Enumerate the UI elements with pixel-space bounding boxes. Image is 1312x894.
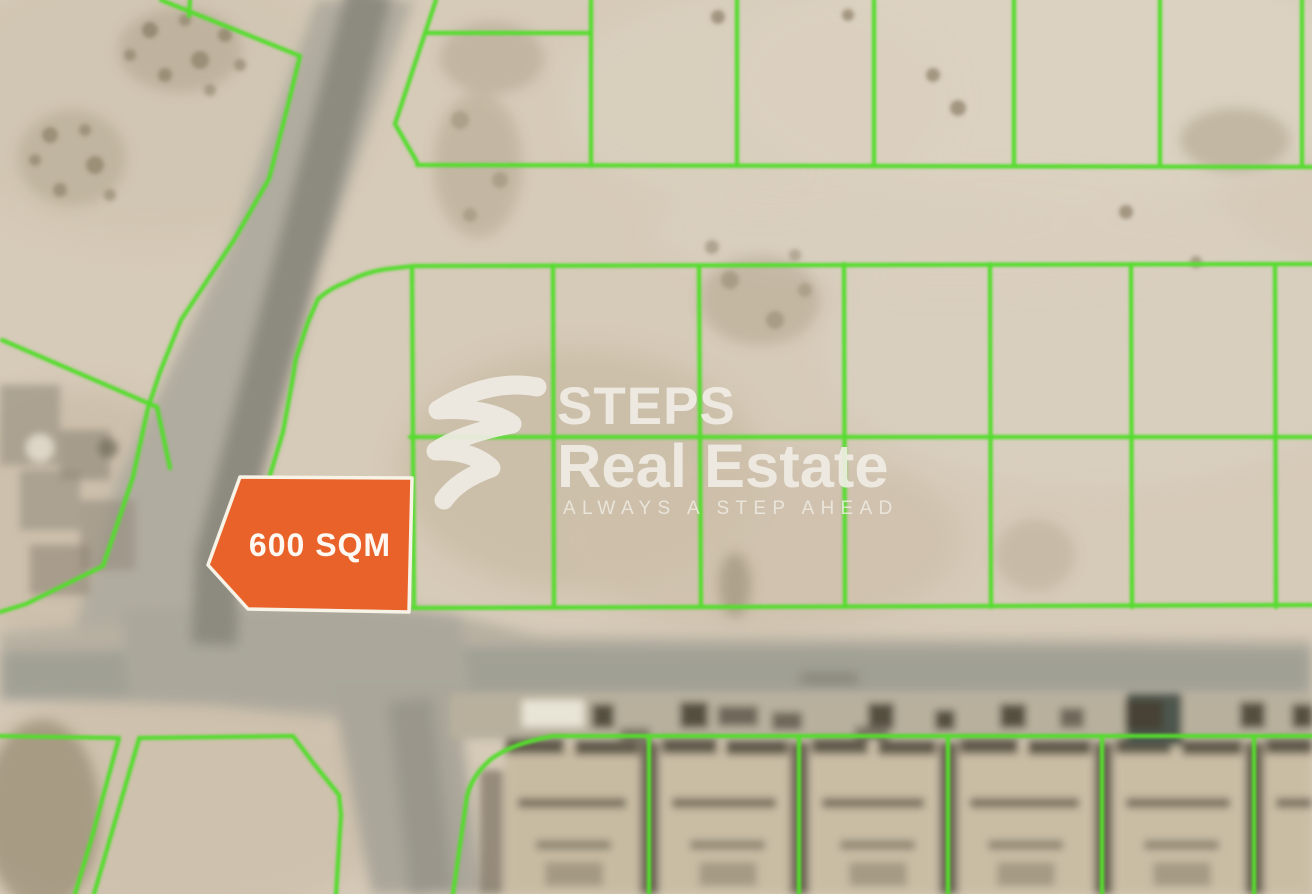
svg-text:Real Estate: Real Estate <box>557 432 889 501</box>
svg-text:600 SQM: 600 SQM <box>249 527 391 563</box>
svg-text:ALWAYS A STEP AHEAD: ALWAYS A STEP AHEAD <box>563 498 898 519</box>
svg-text:STEPS: STEPS <box>557 377 736 436</box>
